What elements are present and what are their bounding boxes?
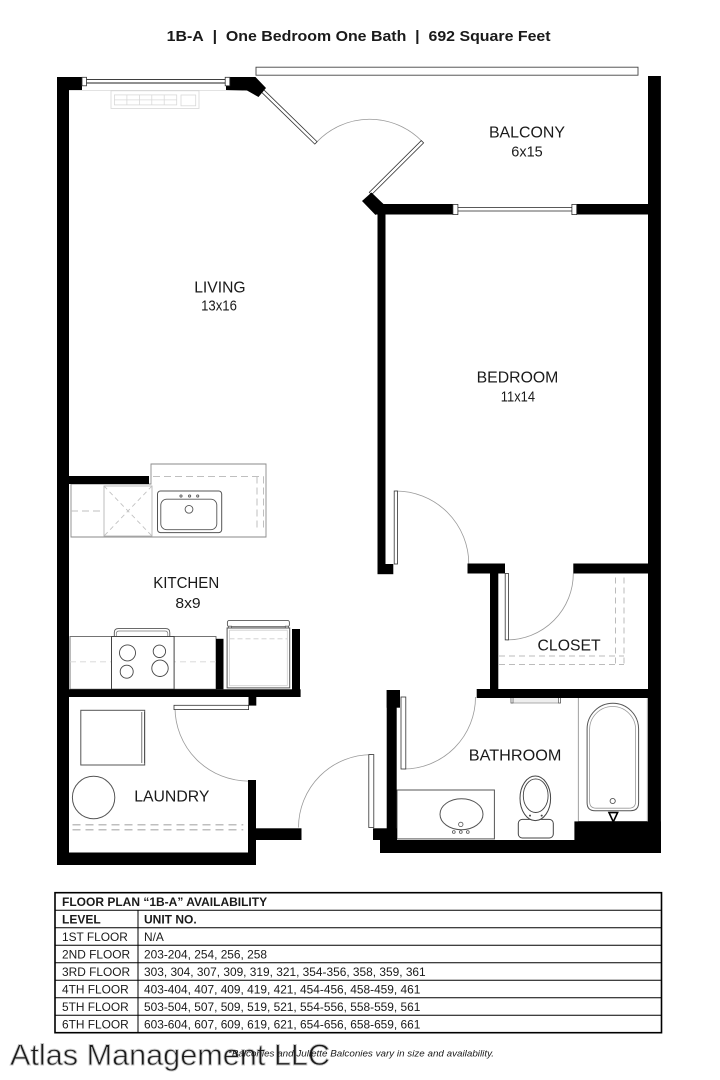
svg-text:3RD FLOOR: 3RD FLOOR <box>62 965 130 979</box>
svg-text:LEVEL: LEVEL <box>62 913 101 927</box>
svg-text:LAUNDRY: LAUNDRY <box>134 789 210 806</box>
svg-text:KITCHEN: KITCHEN <box>153 575 219 592</box>
svg-text:203-204, 254, 256, 258: 203-204, 254, 256, 258 <box>144 948 267 962</box>
svg-text:1ST FLOOR: 1ST FLOOR <box>62 930 128 944</box>
svg-text:UNIT NO.: UNIT NO. <box>144 913 197 927</box>
svg-text:303, 304, 307, 309, 319, 321,: 303, 304, 307, 309, 319, 321, 354-356, 3… <box>144 965 426 979</box>
svg-text:BALCONY: BALCONY <box>489 124 565 141</box>
svg-text:2ND FLOOR: 2ND FLOOR <box>62 948 130 962</box>
svg-text:6TH FLOOR: 6TH FLOOR <box>62 1018 129 1032</box>
svg-text:FLOOR PLAN “1B-A” AVAILABILITY: FLOOR PLAN “1B-A” AVAILABILITY <box>62 895 267 909</box>
svg-text:11x14: 11x14 <box>501 389 535 405</box>
svg-text:403-404, 407, 409, 419, 421, 4: 403-404, 407, 409, 419, 421, 454-456, 45… <box>144 983 421 997</box>
svg-text:603-604, 607, 609, 619, 621, 6: 603-604, 607, 609, 619, 621, 654-656, 65… <box>144 1018 421 1032</box>
svg-text:N/A: N/A <box>144 930 164 944</box>
svg-text:8x9: 8x9 <box>175 596 200 612</box>
svg-text:*Balconies and Juliette Balcon: *Balconies and Juliette Balconies vary i… <box>228 1049 494 1059</box>
svg-text:13x16: 13x16 <box>201 299 237 315</box>
svg-text:4TH FLOOR: 4TH FLOOR <box>62 983 129 997</box>
svg-text:6x15: 6x15 <box>511 144 542 160</box>
svg-text:1B-A | One Bedroom One Bath: 1B-A | One Bedroom One Bath | 692 Square… <box>167 28 551 45</box>
svg-text:LIVING: LIVING <box>194 279 245 296</box>
svg-text:503-504, 507, 509, 519, 521, 5: 503-504, 507, 509, 519, 521, 554-556, 55… <box>144 1000 421 1014</box>
svg-text:5TH FLOOR: 5TH FLOOR <box>62 1000 129 1014</box>
svg-text:BEDROOM: BEDROOM <box>477 370 559 387</box>
svg-text:CLOSET: CLOSET <box>538 637 601 654</box>
svg-text:BATHROOM: BATHROOM <box>469 748 562 765</box>
